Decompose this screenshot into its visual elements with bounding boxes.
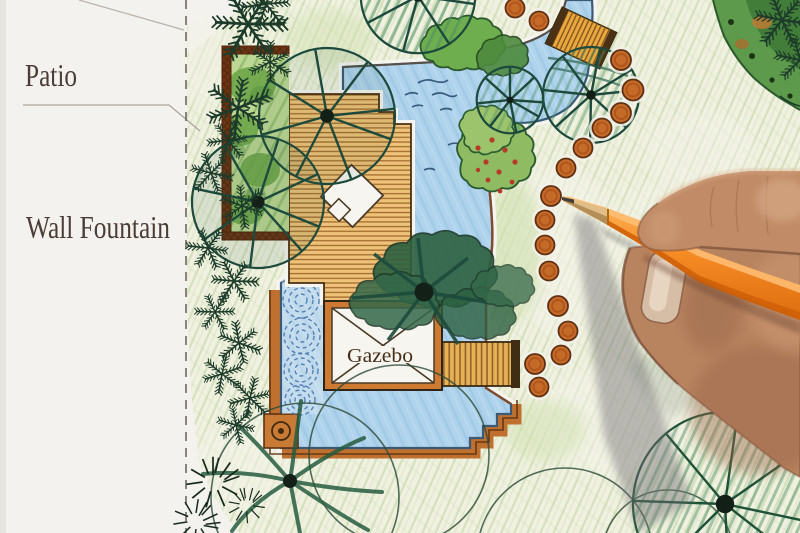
svg-text:Gazebo: Gazebo bbox=[347, 345, 413, 367]
svg-text:Wall Fountain: Wall Fountain bbox=[26, 209, 170, 245]
svg-text:Patio: Patio bbox=[25, 57, 77, 93]
